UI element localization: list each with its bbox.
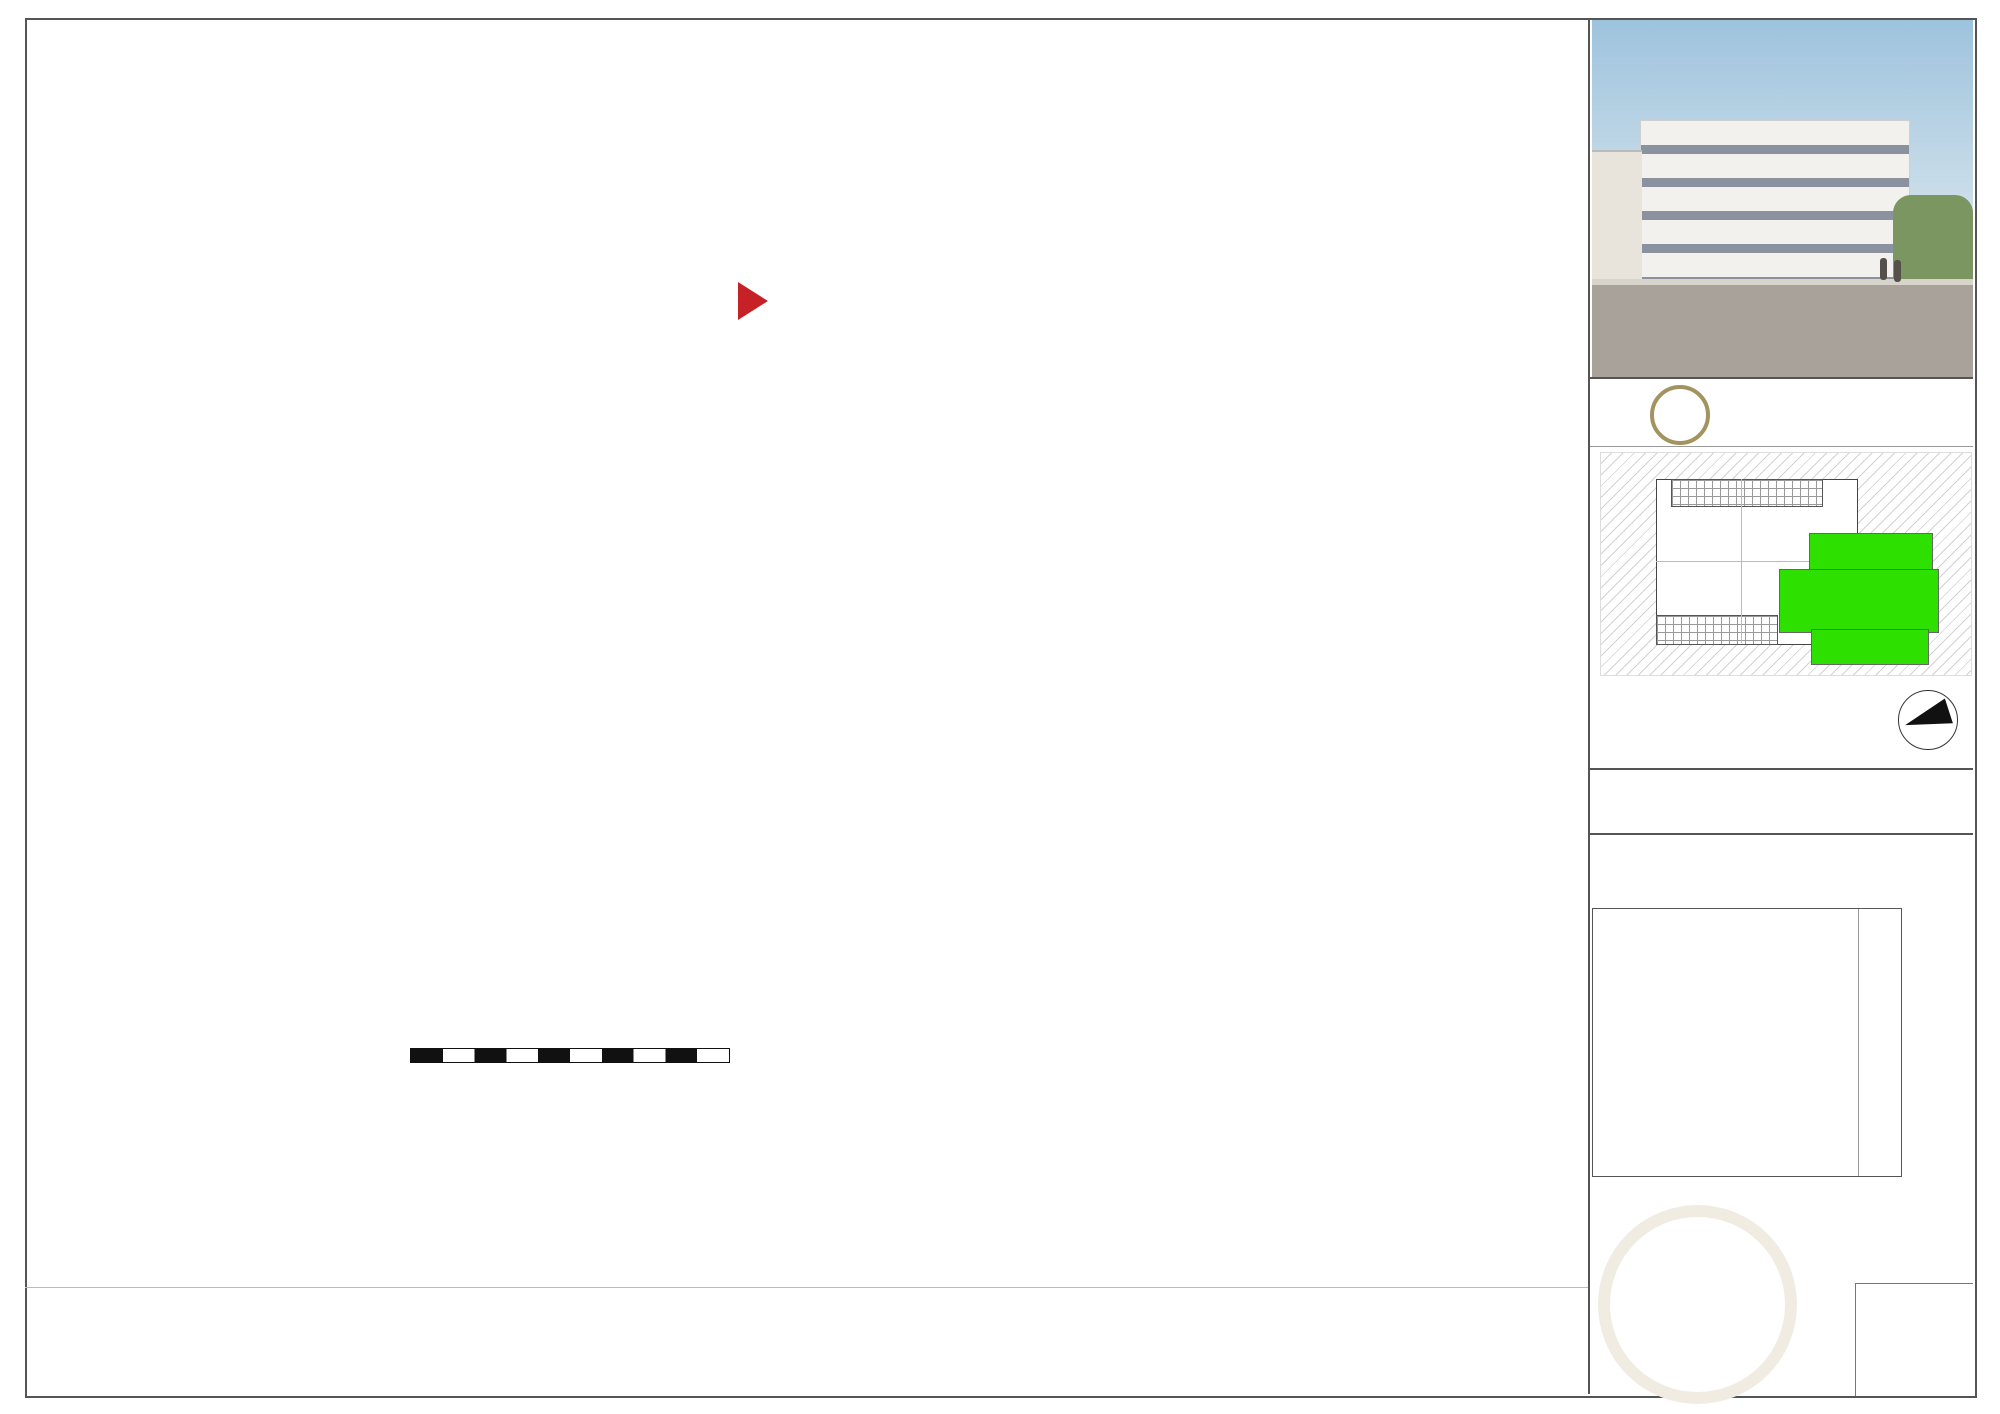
siteplan-terrace-grid xyxy=(1671,479,1823,507)
entrance-arrow-icon xyxy=(738,282,768,320)
photo-building xyxy=(1640,120,1910,282)
titleblock-line xyxy=(1590,768,1973,770)
photo-road xyxy=(1592,279,1973,377)
legend-separator xyxy=(25,1287,1588,1288)
site-key-plan xyxy=(1600,452,1972,676)
titleblock-line xyxy=(1590,833,1973,835)
scale-bar xyxy=(410,1048,730,1063)
building-photo xyxy=(1592,20,1973,377)
watermark-circle xyxy=(1598,1205,1797,1404)
sidebar-line xyxy=(1590,446,1973,447)
surface-table xyxy=(1592,908,1902,1177)
floor-plan-sheet xyxy=(0,0,2000,1414)
siteplan-terrace-grid xyxy=(1656,615,1778,645)
siteplan-highlighted-unit xyxy=(1779,569,1939,633)
photo-person xyxy=(1894,260,1901,282)
siteplan-highlighted-unit xyxy=(1811,629,1929,665)
floor-plan xyxy=(0,0,1590,1414)
century21-logo-icon xyxy=(1650,385,1710,445)
date-box xyxy=(1855,1283,1973,1396)
photo-person xyxy=(1880,258,1887,280)
sidebar-line xyxy=(1590,377,1973,379)
